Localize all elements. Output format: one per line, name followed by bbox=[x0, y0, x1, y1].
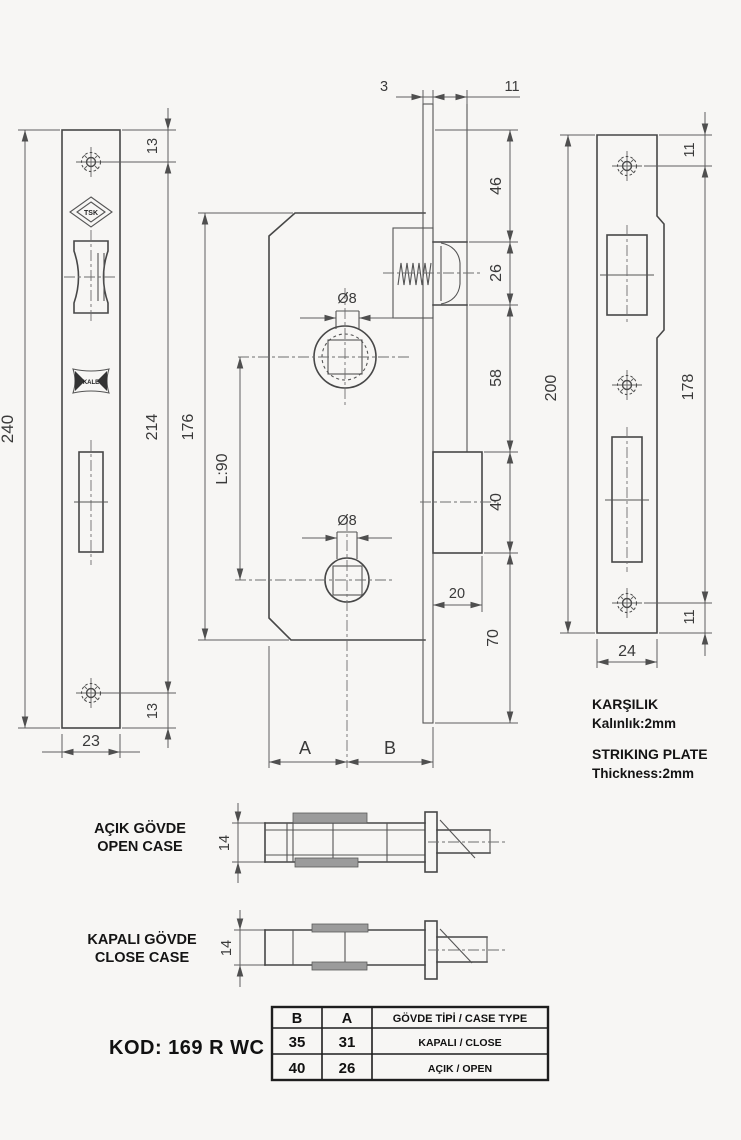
latch-cutout bbox=[64, 230, 118, 324]
latch-bolt-assembly bbox=[383, 228, 480, 318]
strike-screw-bottom bbox=[612, 588, 642, 618]
tsk-logo-text: TSK bbox=[84, 210, 98, 217]
screw-hole-top bbox=[76, 147, 106, 177]
faceplate-outline bbox=[62, 130, 120, 728]
table-header-b: B bbox=[292, 1011, 302, 1027]
strike-caption-tr-title: KARŞILIK bbox=[592, 696, 658, 712]
dim-d8-bottom-label: Ø8 bbox=[337, 513, 356, 529]
dim-178-label: 178 bbox=[680, 374, 697, 401]
cell-a-close: 31 bbox=[339, 1034, 356, 1051]
lock-technical-drawing: TSK KALE bbox=[0, 0, 741, 1140]
open-case-view: AÇIK GÖVDE OPEN CASE bbox=[94, 803, 505, 883]
dim-26-label: 26 bbox=[488, 264, 505, 282]
dim-70-label: 70 bbox=[485, 629, 502, 647]
table-row: 40 26 AÇIK / OPEN bbox=[289, 1060, 492, 1077]
cell-b-open: 40 bbox=[289, 1060, 306, 1077]
cell-b-close: 35 bbox=[289, 1034, 306, 1051]
striking-plate-view: 200 178 11 11 24 KARŞILIK Kalınlık:2mm S… bbox=[543, 112, 712, 781]
deadbolt-cutout bbox=[74, 440, 108, 565]
cell-a-open: 26 bbox=[339, 1060, 356, 1077]
strike-caption-tr-sub: Kalınlık:2mm bbox=[592, 716, 676, 731]
body-faceplate-edge bbox=[423, 104, 433, 723]
kale-logo: KALE bbox=[73, 369, 109, 393]
dim-13-top-label: 13 bbox=[145, 138, 161, 154]
close-case-label-en: CLOSE CASE bbox=[95, 950, 190, 966]
table-header-a: A bbox=[342, 1011, 353, 1027]
dim-58-label: 58 bbox=[488, 369, 505, 387]
dim-a-label: A bbox=[299, 738, 311, 758]
spec-table-section: KOD: 169 R WC B A GÖVDE TİPİ / CASE TYPE… bbox=[109, 1007, 548, 1080]
dim-14-close-label: 14 bbox=[219, 940, 235, 956]
dim-b-label: B bbox=[384, 738, 396, 758]
dim-11-label: 11 bbox=[504, 79, 519, 95]
dim-176-label: 176 bbox=[180, 414, 197, 441]
dim-3-label: 3 bbox=[380, 79, 388, 95]
lower-follower bbox=[235, 520, 392, 768]
dim-d8-top-label: Ø8 bbox=[337, 291, 356, 307]
close-case-label-tr: KAPALI GÖVDE bbox=[87, 931, 197, 948]
screw-hole-bottom bbox=[76, 678, 106, 708]
body-dimension-lines bbox=[198, 90, 520, 768]
strike-screw-top bbox=[612, 151, 642, 181]
open-case-dimension bbox=[235, 803, 242, 883]
close-case-drawing bbox=[234, 921, 505, 979]
tsk-logo: TSK bbox=[70, 197, 112, 227]
kale-logo-text: KALE bbox=[83, 380, 99, 386]
close-case-dimension bbox=[237, 910, 244, 987]
dim-40-label: 40 bbox=[488, 493, 505, 511]
table-header-case-type: GÖVDE TİPİ / CASE TYPE bbox=[393, 1012, 527, 1025]
close-case-view: KAPALI GÖVDE CLOSE CASE 14 bbox=[87, 910, 505, 987]
striking-plate-outline bbox=[597, 135, 664, 633]
dim-l90-label: L:90 bbox=[214, 453, 231, 484]
spindle-follower bbox=[238, 288, 412, 408]
spec-table: B A GÖVDE TİPİ / CASE TYPE 35 31 KAPALI … bbox=[272, 1007, 548, 1080]
cell-type-close: KAPALI / CLOSE bbox=[418, 1037, 501, 1049]
strike-caption-en-sub: Thickness:2mm bbox=[592, 766, 694, 781]
table-row: 35 31 KAPALI / CLOSE bbox=[289, 1034, 502, 1051]
lock-body-view: 3 11 46 26 58 40 70 Ø8 Ø8 L:90 176 20 A … bbox=[180, 79, 520, 768]
dim-14-open-label: 14 bbox=[217, 835, 233, 851]
dim-11-strike-top-label: 11 bbox=[682, 142, 698, 157]
strike-caption-en-title: STRIKING PLATE bbox=[592, 746, 708, 762]
strike-screw-middle bbox=[612, 370, 642, 400]
deadbolt-thrown bbox=[420, 452, 496, 553]
dim-200-label: 200 bbox=[543, 375, 560, 402]
open-case-drawing bbox=[232, 812, 505, 872]
dim-24-label: 24 bbox=[618, 643, 636, 660]
cell-type-open: AÇIK / OPEN bbox=[428, 1063, 492, 1075]
open-case-label-en: OPEN CASE bbox=[97, 839, 183, 855]
dim-13-bottom-label: 13 bbox=[145, 703, 161, 719]
dim-214-label: 214 bbox=[144, 414, 161, 441]
strike-latch-opening bbox=[600, 225, 654, 325]
strike-deadbolt-opening bbox=[605, 427, 649, 572]
product-code: KOD: 169 R WC bbox=[109, 1037, 264, 1059]
dim-11-strike-bottom-label: 11 bbox=[682, 609, 698, 624]
open-case-label-tr: AÇIK GÖVDE bbox=[94, 820, 186, 837]
dim-23-label: 23 bbox=[82, 733, 100, 750]
latch-spring bbox=[398, 263, 431, 285]
dim-46-label: 46 bbox=[488, 177, 505, 195]
technical-drawing-page: TSK KALE bbox=[0, 0, 741, 1140]
dim-20-label: 20 bbox=[449, 586, 465, 602]
dim-240-label: 240 bbox=[0, 415, 17, 443]
faceplate-front-view: TSK KALE bbox=[0, 108, 176, 758]
